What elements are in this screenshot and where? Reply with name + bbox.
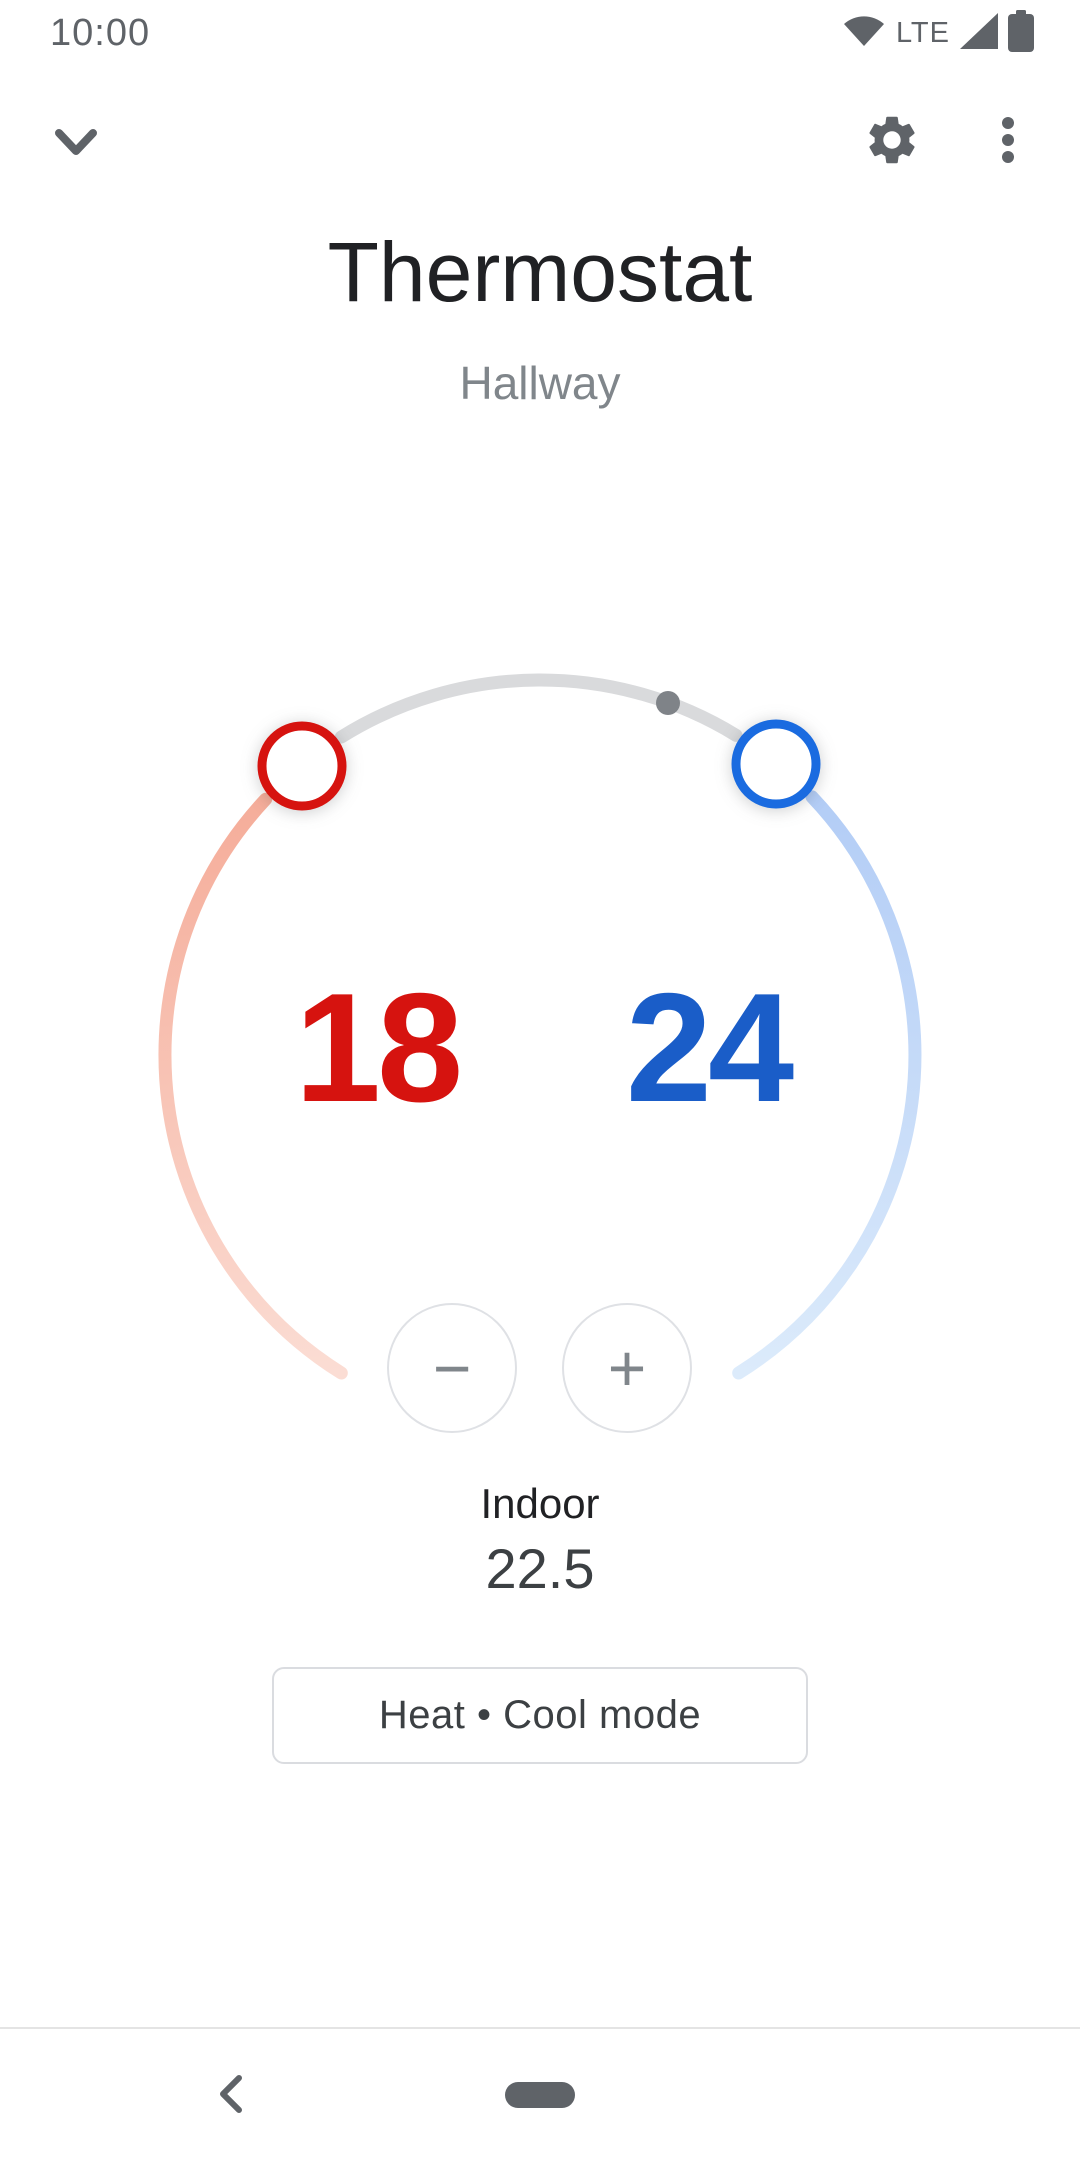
status-icons: LTE xyxy=(842,10,1034,56)
gear-icon xyxy=(863,111,921,174)
status-time: 10:00 xyxy=(50,12,150,55)
signal-icon xyxy=(960,13,998,54)
home-pill[interactable] xyxy=(505,2082,575,2108)
cool-handle[interactable] xyxy=(736,724,816,804)
header-actions xyxy=(854,104,1046,180)
back-chevron-icon xyxy=(215,2074,245,2119)
cool-setpoint-value: 24 xyxy=(538,960,878,1135)
page-title: Thermostat xyxy=(0,224,1080,321)
mode-button-label: Heat • Cool mode xyxy=(379,1693,701,1738)
overflow-menu-button[interactable] xyxy=(970,104,1046,180)
decrease-temp-button[interactable]: − xyxy=(387,1303,517,1433)
nav-divider xyxy=(0,2027,1080,2029)
back-button[interactable] xyxy=(200,2066,260,2126)
mode-button[interactable]: Heat • Cool mode xyxy=(272,1667,808,1764)
heat-setpoint-value: 18 xyxy=(207,960,547,1135)
plus-icon: + xyxy=(608,1335,647,1401)
room-subtitle: Hallway xyxy=(0,356,1080,410)
heat-handle[interactable] xyxy=(262,726,342,806)
minus-icon: − xyxy=(433,1335,472,1401)
range-arc xyxy=(341,680,736,737)
settings-button[interactable] xyxy=(854,104,930,180)
indoor-temperature: 22.5 xyxy=(0,1536,1080,1601)
network-type-label: LTE xyxy=(896,17,950,50)
collapse-button[interactable] xyxy=(44,112,108,176)
wifi-icon xyxy=(842,12,886,55)
battery-icon xyxy=(1008,10,1034,57)
chevron-down-icon xyxy=(53,127,99,162)
increase-temp-button[interactable]: + xyxy=(562,1303,692,1433)
overflow-menu-icon xyxy=(1001,116,1015,169)
current-temp-dot xyxy=(656,691,680,715)
indoor-label: Indoor xyxy=(0,1480,1080,1528)
